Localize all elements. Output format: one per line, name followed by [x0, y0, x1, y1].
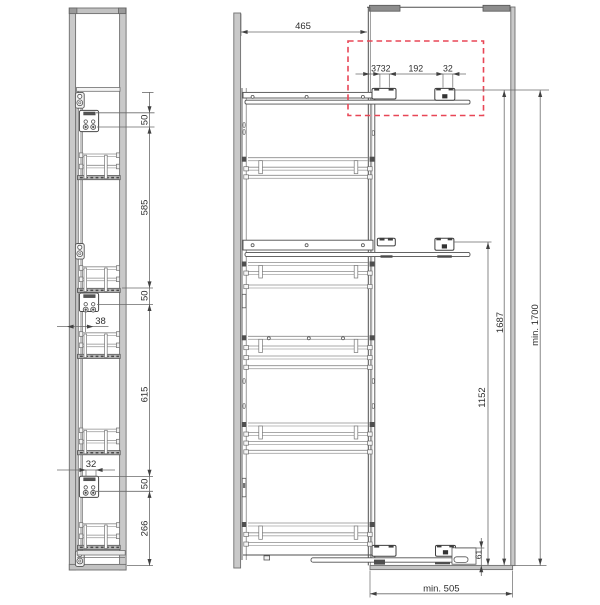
svg-text:32: 32	[381, 63, 391, 73]
svg-text:37: 37	[371, 63, 381, 73]
svg-text:192: 192	[408, 63, 423, 73]
svg-text:50: 50	[139, 115, 150, 126]
svg-text:32: 32	[86, 459, 97, 470]
svg-text:1152: 1152	[477, 387, 488, 407]
svg-text:1687: 1687	[495, 312, 506, 333]
svg-text:50: 50	[139, 479, 150, 490]
svg-text:585: 585	[139, 200, 150, 216]
svg-text:615: 615	[139, 387, 150, 403]
svg-text:465: 465	[295, 21, 311, 32]
svg-text:32: 32	[443, 63, 453, 73]
svg-text:min. 1700: min. 1700	[530, 304, 541, 346]
svg-text:61: 61	[473, 550, 483, 560]
svg-text:min. 505: min. 505	[423, 584, 459, 595]
svg-text:50: 50	[139, 290, 150, 301]
svg-text:266: 266	[139, 521, 150, 537]
svg-text:38: 38	[95, 316, 106, 327]
